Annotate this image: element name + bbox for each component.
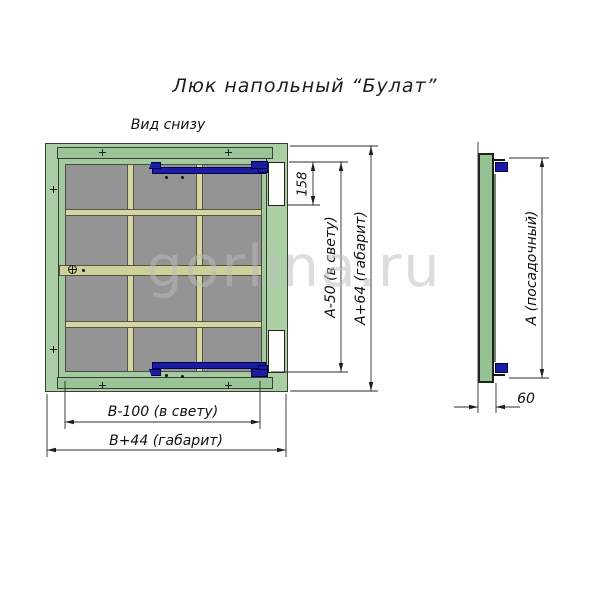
dimension-lines xyxy=(0,0,600,600)
dim-overall-height: А+64 (габарит) xyxy=(353,211,369,325)
dim-clear-height: А-50 (в свету) xyxy=(323,216,339,318)
dim-frame-depth: 60 xyxy=(517,391,535,407)
dim-overall-width: В+44 (габарит) xyxy=(109,433,223,449)
dim-latch-offset: 158 xyxy=(296,172,311,197)
dim-seat-size: А (посадочный) xyxy=(524,211,540,326)
dim-clear-width: В-100 (в свету) xyxy=(108,404,218,420)
drawing-canvas: Люк напольный “Булат” Вид снизу xyxy=(0,0,600,600)
